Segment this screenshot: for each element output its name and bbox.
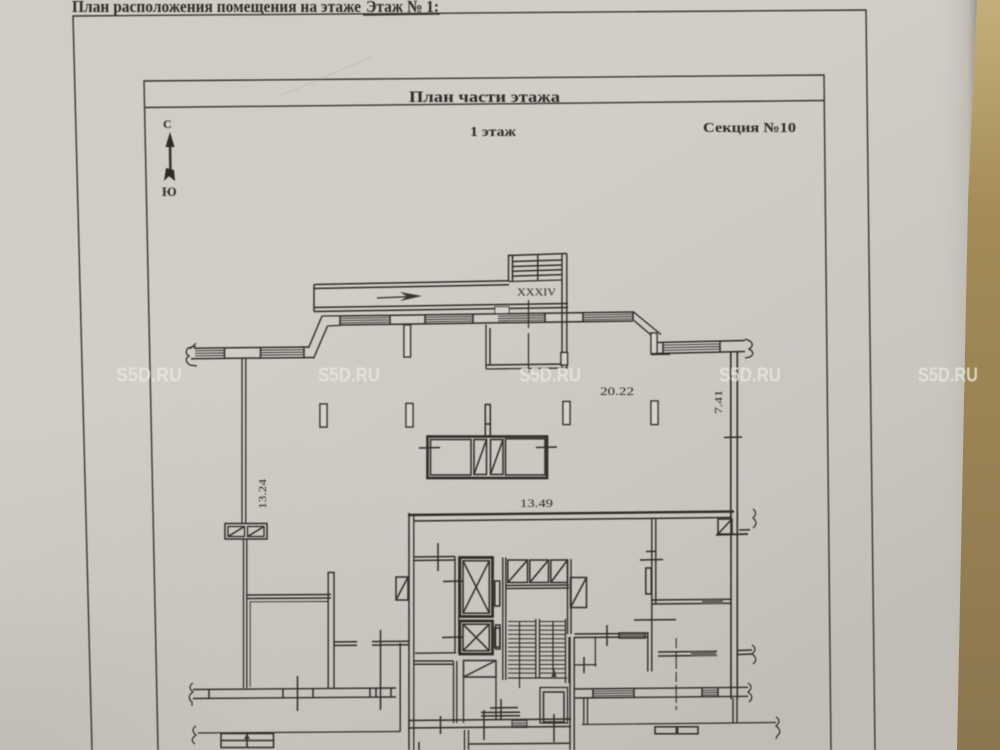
svg-text:1 этаж: 1 этаж [470, 125, 517, 140]
svg-text:Ю: Ю [162, 184, 177, 199]
svg-text:13.49: 13.49 [520, 496, 553, 510]
svg-text:13.24: 13.24 [257, 478, 269, 509]
svg-text:S5D.RU: S5D.RU [318, 364, 380, 387]
svg-text:7.41: 7.41 [713, 390, 725, 414]
svg-text:План части этажа: План части этажа [409, 89, 560, 106]
svg-text:XXXIV: XXXIV [517, 287, 556, 299]
svg-text:S5D.RU: S5D.RU [519, 364, 581, 387]
svg-text:S5D.RU: S5D.RU [116, 364, 182, 387]
svg-text:20.22: 20.22 [600, 384, 634, 398]
svg-text:С: С [163, 117, 172, 131]
svg-text:Секция №10: Секция №10 [703, 121, 796, 136]
svg-text:S5D.RU: S5D.RU [918, 364, 978, 387]
svg-text:S5D.RU: S5D.RU [719, 364, 781, 387]
